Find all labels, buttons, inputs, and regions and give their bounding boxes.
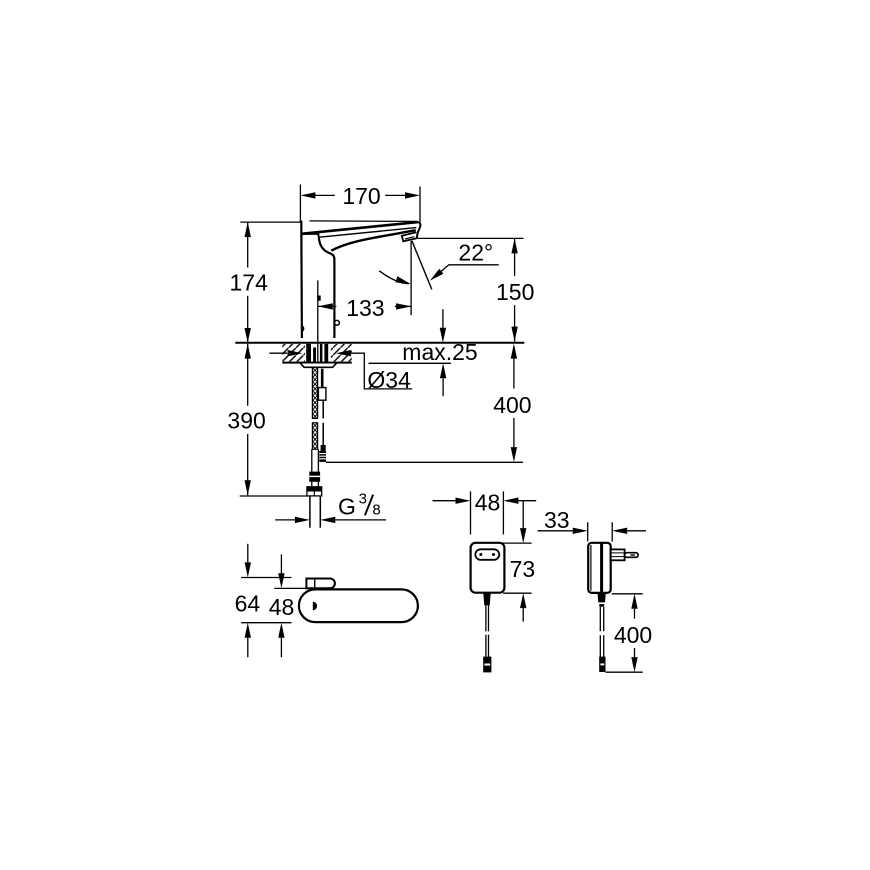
- svg-text:max.25: max.25: [402, 339, 477, 365]
- svg-text:G: G: [338, 494, 356, 520]
- svg-text:48: 48: [269, 594, 295, 620]
- svg-text:33: 33: [544, 507, 570, 533]
- svg-text:174: 174: [230, 269, 269, 295]
- svg-text:390: 390: [227, 407, 265, 433]
- svg-text:Ø34: Ø34: [367, 367, 411, 393]
- svg-text:133: 133: [346, 295, 384, 321]
- svg-text:48: 48: [475, 489, 501, 515]
- svg-text:170: 170: [342, 183, 380, 209]
- svg-text:400: 400: [493, 392, 531, 418]
- svg-text:3: 3: [359, 491, 367, 508]
- svg-text:400: 400: [614, 622, 652, 648]
- svg-text:22°: 22°: [458, 240, 493, 266]
- svg-text:64: 64: [235, 590, 261, 616]
- svg-text:150: 150: [496, 279, 534, 305]
- svg-text:8: 8: [372, 501, 380, 518]
- svg-text:73: 73: [510, 556, 536, 582]
